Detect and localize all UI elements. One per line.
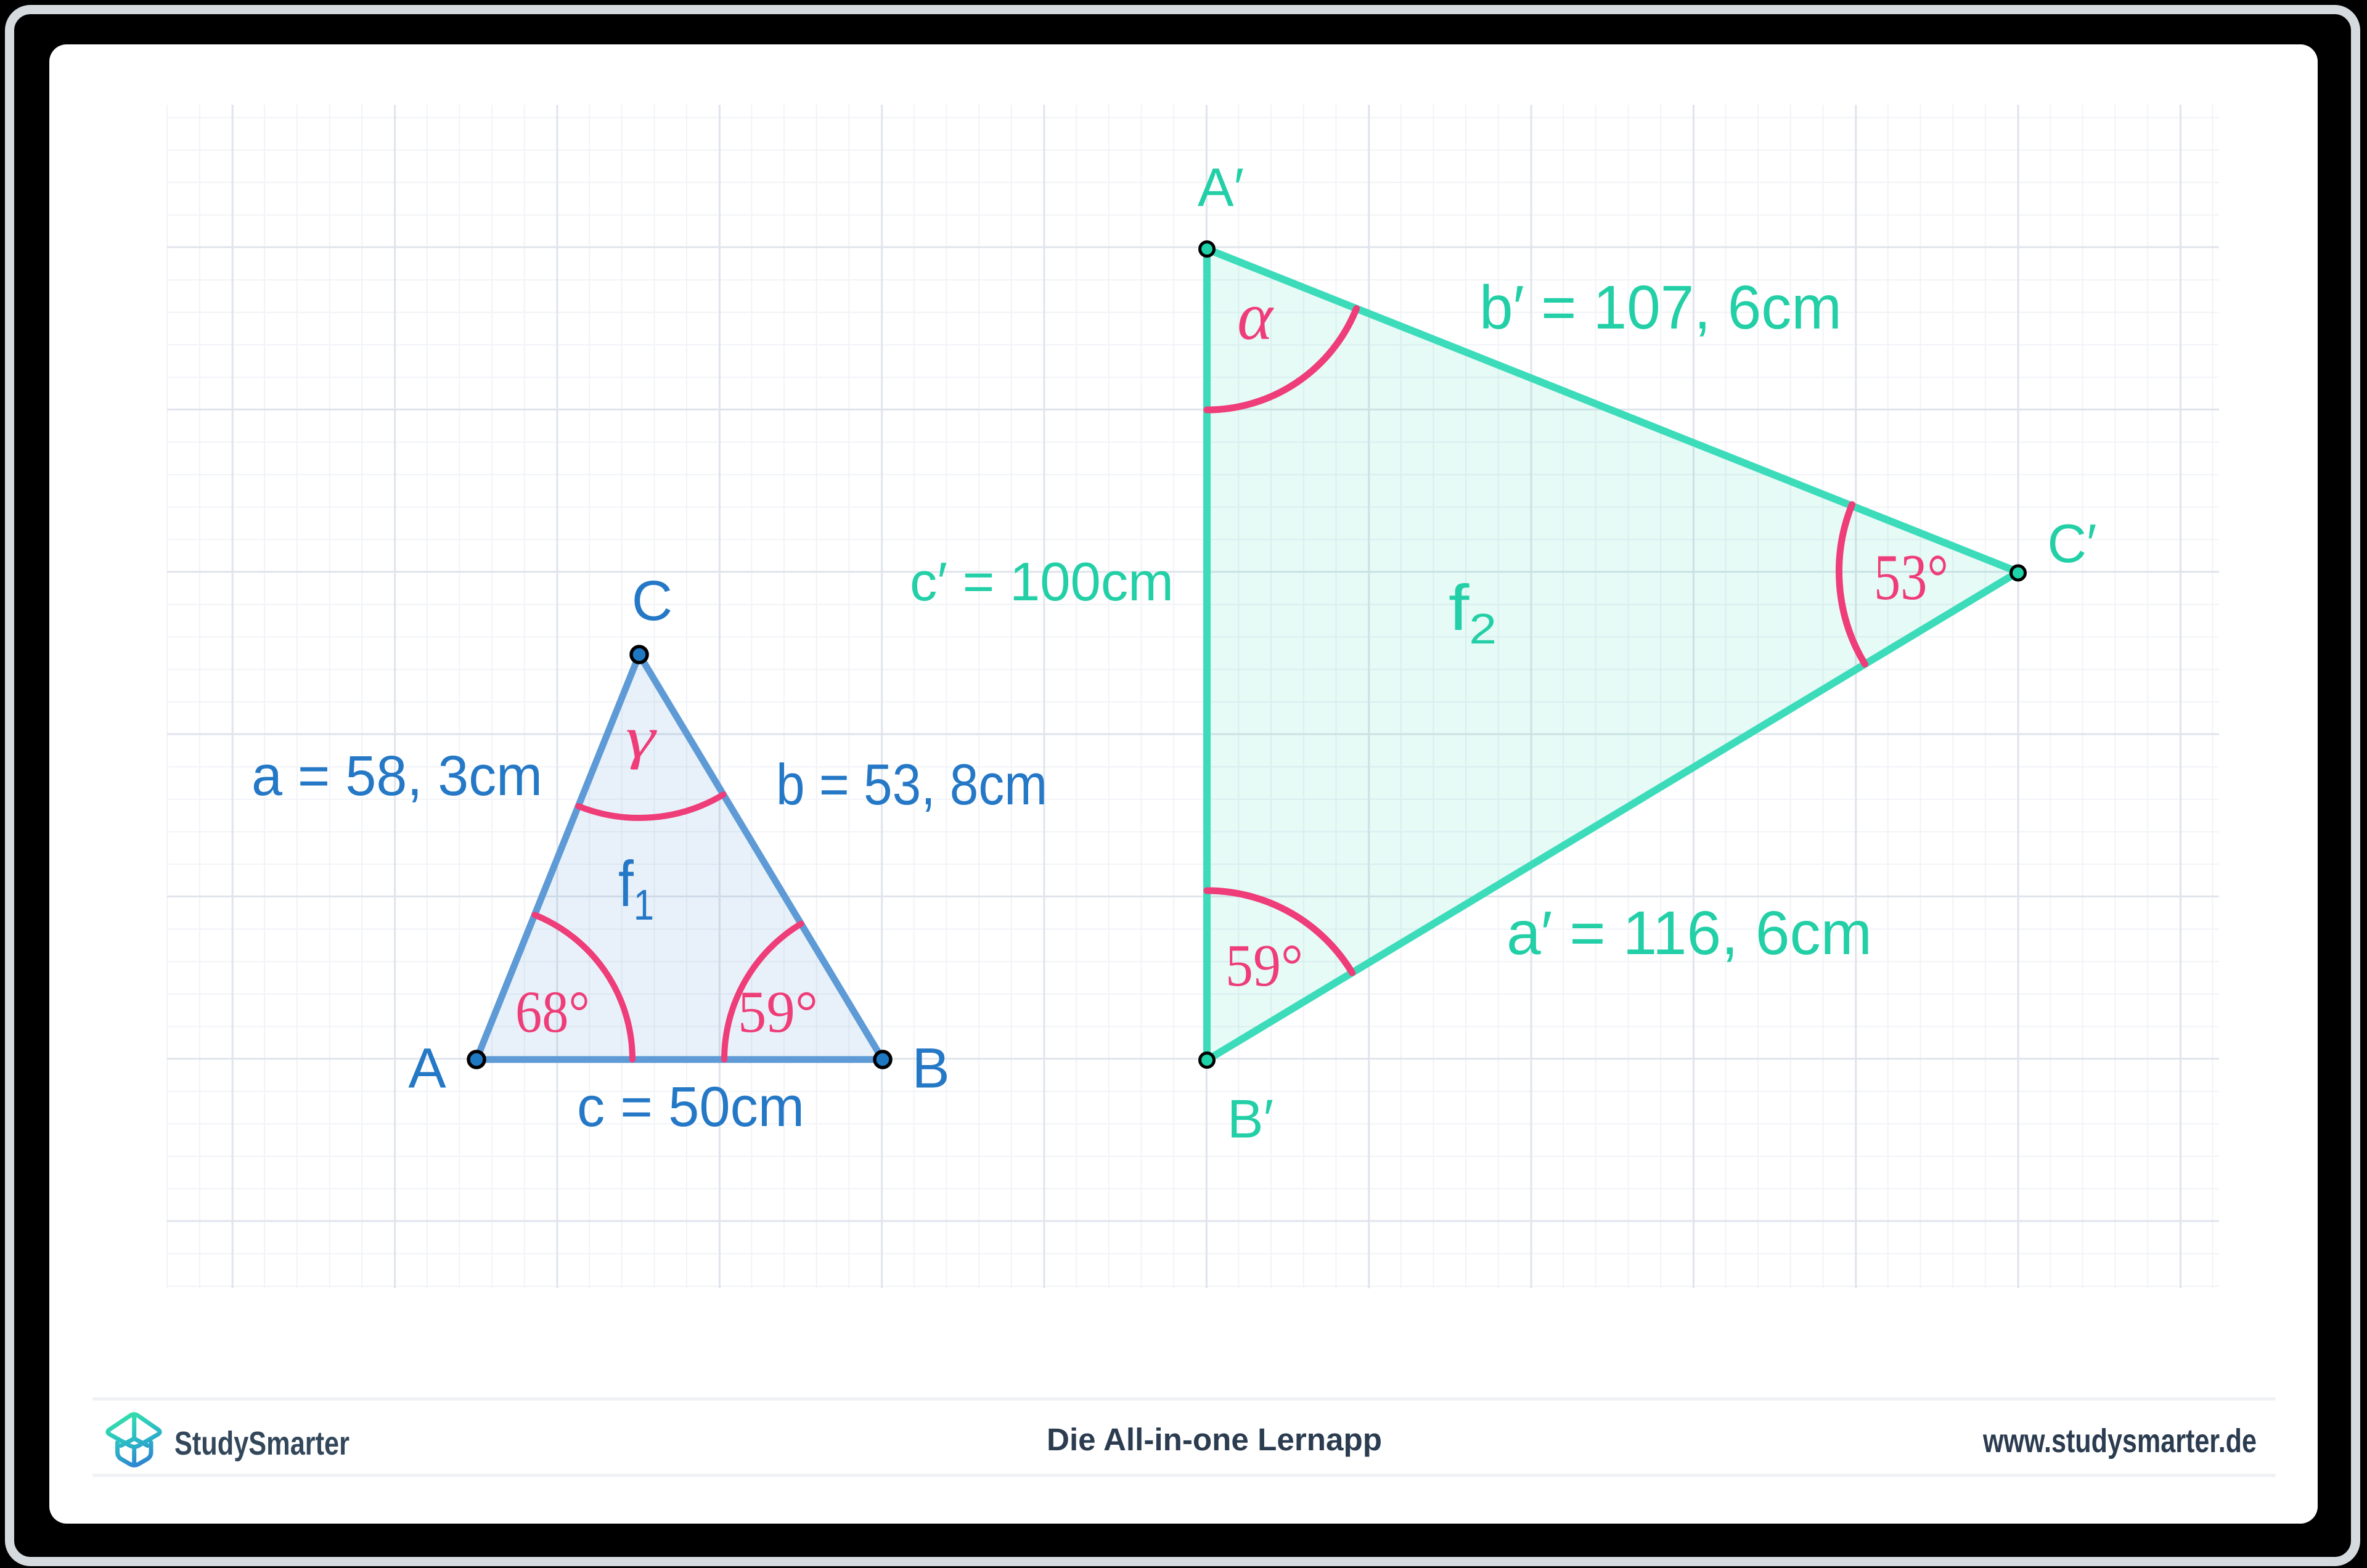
svg-text:b′ = 107, 6cm: b′ = 107, 6cm (1479, 273, 1842, 342)
svg-text:a = 58, 3cm: a = 58, 3cm (251, 745, 542, 807)
svg-text:59°: 59° (1225, 933, 1303, 999)
svg-text:Die All-in-one Lernapp: Die All-in-one Lernapp (1047, 1422, 1382, 1457)
svg-text:C′: C′ (2047, 513, 2096, 574)
svg-text:www.studysmarter.de: www.studysmarter.de (1982, 1423, 2257, 1460)
svg-text:γ: γ (626, 704, 657, 770)
svg-text:C: C (632, 570, 672, 632)
svg-text:c′ = 100cm: c′ = 100cm (910, 551, 1174, 612)
svg-text:53°: 53° (1874, 541, 1948, 613)
svg-text:α: α (1237, 279, 1274, 354)
svg-text:StudySmarter: StudySmarter (174, 1425, 350, 1462)
svg-text:b = 53, 8cm: b = 53, 8cm (776, 752, 1047, 817)
svg-text:68°: 68° (515, 979, 590, 1045)
svg-text:a′ = 116, 6cm: a′ = 116, 6cm (1506, 899, 1872, 968)
svg-text:B: B (912, 1037, 949, 1100)
svg-text:A′: A′ (1198, 157, 1244, 218)
svg-text:B′: B′ (1227, 1088, 1273, 1149)
svg-text:c = 50cm: c = 50cm (577, 1076, 804, 1138)
svg-text:59°: 59° (738, 979, 818, 1045)
svg-text:A: A (408, 1037, 446, 1100)
